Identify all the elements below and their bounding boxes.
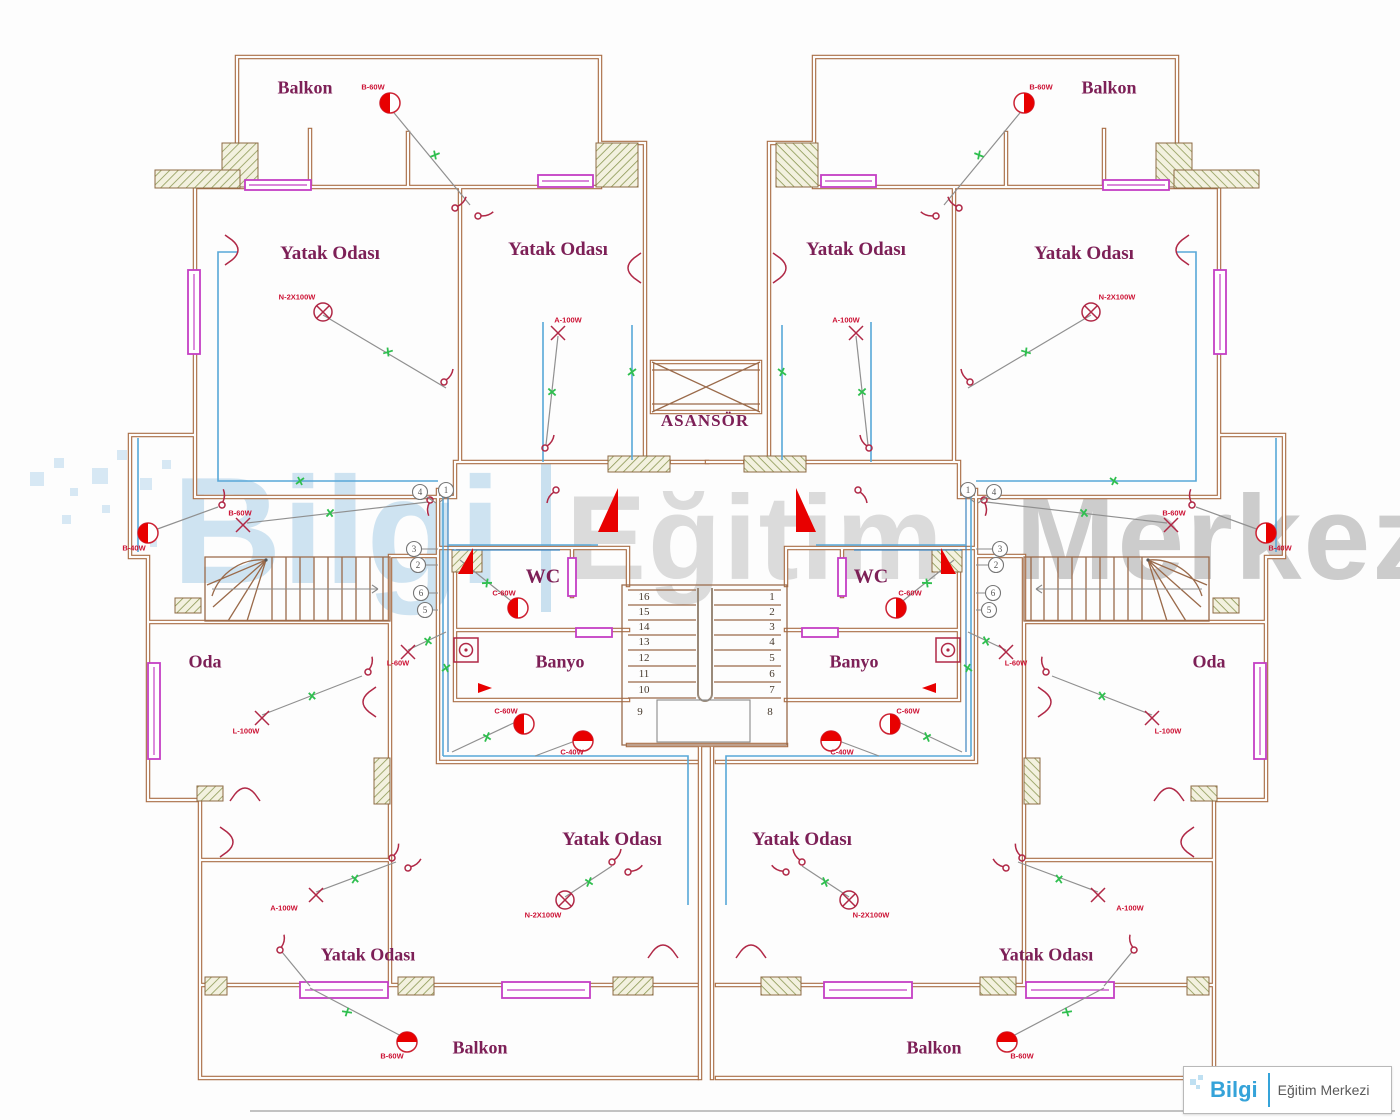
bath-lamp-icon: [514, 714, 534, 734]
main-stair: [622, 585, 787, 745]
lamp-icon: [401, 645, 415, 659]
logo-pixel: [1198, 1075, 1203, 1080]
switch-icon: [404, 855, 421, 874]
logo-divider: [1268, 1073, 1270, 1107]
sconce-icon: [225, 235, 238, 265]
switch-icon: [474, 204, 493, 224]
wiring: [138, 252, 688, 905]
floor-plan-drawing: [0, 0, 1400, 1120]
lamp-icon: [255, 711, 269, 725]
stair-landing: [657, 700, 750, 742]
logo-name-text: Eğitim Merkezi: [1278, 1082, 1370, 1098]
sconce-icon: [363, 687, 376, 717]
switch-icon: [547, 487, 559, 503]
sconce-icon: [648, 945, 678, 958]
logo-brand-text: Bilgi: [1210, 1077, 1258, 1103]
sconce-icon: [220, 827, 233, 857]
switch-icon: [609, 849, 621, 865]
sconce-icon: [230, 788, 260, 801]
left-half-plan: [130, 57, 707, 1078]
bath-lamp-icon: [573, 731, 593, 751]
sconce-icon: [628, 253, 641, 283]
brand-logo: Bilgi Eğitim Merkezi: [1183, 1066, 1392, 1114]
right-half-plan: [707, 57, 1284, 1078]
panel-wedge-icon: [598, 488, 618, 532]
circuit-ticks: [296, 150, 636, 1018]
floor-plan-page: Bilgi Eğitim Merkezi: [0, 0, 1400, 1120]
stair-handrail: [698, 588, 712, 701]
switch-icon: [624, 859, 642, 879]
ceiling-lamp-icon: [556, 891, 574, 909]
switch-icon: [361, 657, 378, 676]
lamp-icon: [236, 518, 250, 532]
winder-stair: [205, 557, 390, 621]
socket-icon: [454, 638, 478, 662]
switch-icon: [441, 369, 453, 385]
lamp-icon: [309, 888, 323, 902]
switch-icon: [273, 935, 290, 954]
balcony-lamp-icon: [397, 1032, 417, 1052]
wc-lamp-icon: [508, 598, 528, 618]
hall-lamp-icon: [138, 523, 158, 543]
switch-lines: [152, 108, 612, 1038]
ceiling-lamp-icon: [314, 303, 332, 321]
logo-pixel: [1196, 1085, 1200, 1089]
flag-icon: [478, 683, 492, 693]
balcony-lamp-icon: [380, 93, 400, 113]
electrical-symbols: [138, 93, 678, 1052]
